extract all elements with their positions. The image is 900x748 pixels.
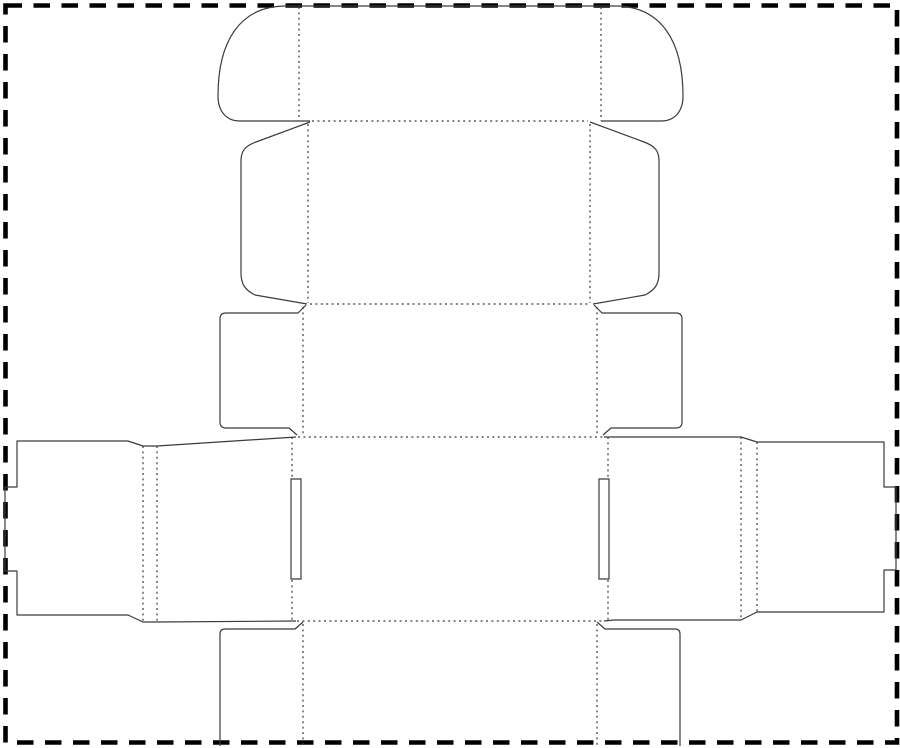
lock-slit-right bbox=[599, 479, 609, 579]
front-tab-right bbox=[594, 305, 682, 435]
fold-lines bbox=[143, 7, 757, 746]
dieline-canvas bbox=[0, 0, 900, 748]
lock-slit-left bbox=[291, 479, 301, 579]
box-dieline-svg bbox=[0, 0, 900, 748]
bottom-flap-left bbox=[220, 622, 303, 746]
body-strip-right-outline bbox=[604, 437, 896, 621]
lid-dust-flap-right bbox=[590, 122, 659, 304]
tuck-flap-outline bbox=[218, 6, 683, 121]
lid-dust-flap-left bbox=[241, 122, 310, 304]
front-tab-left bbox=[220, 305, 306, 435]
cut-lines bbox=[5, 6, 896, 746]
bottom-flap-right bbox=[597, 622, 680, 746]
body-strip-left-outline bbox=[5, 437, 296, 622]
sheet-dashed-border bbox=[6, 6, 898, 743]
